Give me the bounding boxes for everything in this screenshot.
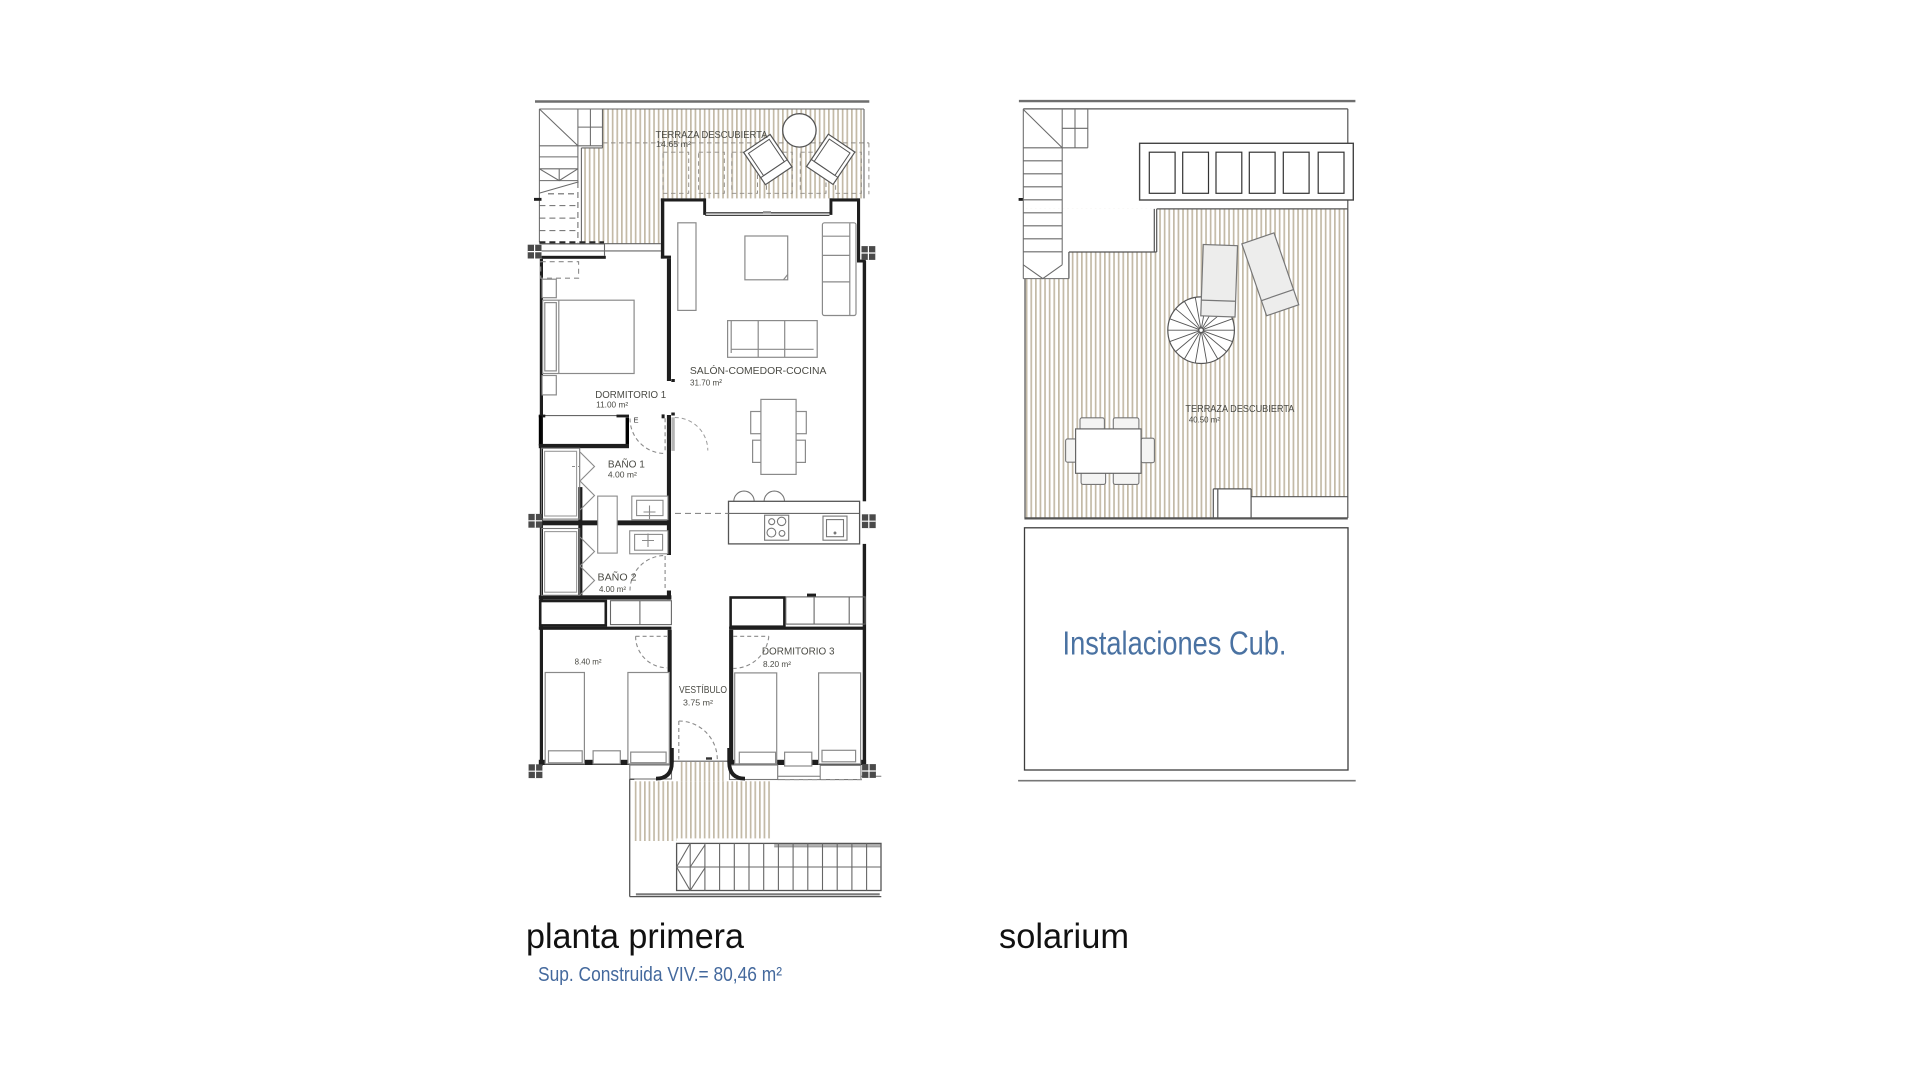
svg-text:4.00 m²: 4.00 m²	[608, 470, 637, 480]
svg-text:planta primera: planta primera	[526, 917, 745, 956]
svg-text:4.00 m²: 4.00 m²	[599, 584, 626, 594]
svg-text:DORMITORIO 3: DORMITORIO 3	[762, 646, 835, 657]
svg-text:14.65 m²: 14.65 m²	[656, 139, 691, 149]
svg-text:solarium: solarium	[999, 917, 1129, 956]
svg-text:BAÑO 1: BAÑO 1	[608, 457, 645, 470]
svg-text:Sup. Construida VIV.= 80,46 m²: Sup. Construida VIV.= 80,46 m²	[538, 963, 782, 986]
svg-text:TERRAZA DESCUBIERTA: TERRAZA DESCUBIERTA	[1185, 404, 1294, 415]
svg-text:40.50 m²: 40.50 m²	[1189, 415, 1220, 425]
svg-text:31.70 m²: 31.70 m²	[690, 377, 722, 387]
svg-text:Instalaciones Cub.: Instalaciones Cub.	[1063, 625, 1287, 662]
svg-text:8.40 m²: 8.40 m²	[575, 657, 602, 667]
svg-text:3.75 m²: 3.75 m²	[683, 698, 713, 708]
svg-text:BAÑO 2: BAÑO 2	[598, 571, 637, 584]
svg-text:SALÓN-COMEDOR-COCINA: SALÓN-COMEDOR-COCINA	[690, 364, 827, 377]
svg-text:11.00 m²: 11.00 m²	[596, 400, 628, 410]
svg-text:8.20 m²: 8.20 m²	[763, 659, 791, 669]
svg-text:E: E	[634, 416, 639, 425]
svg-text:VESTÍBULO: VESTÍBULO	[679, 683, 727, 696]
